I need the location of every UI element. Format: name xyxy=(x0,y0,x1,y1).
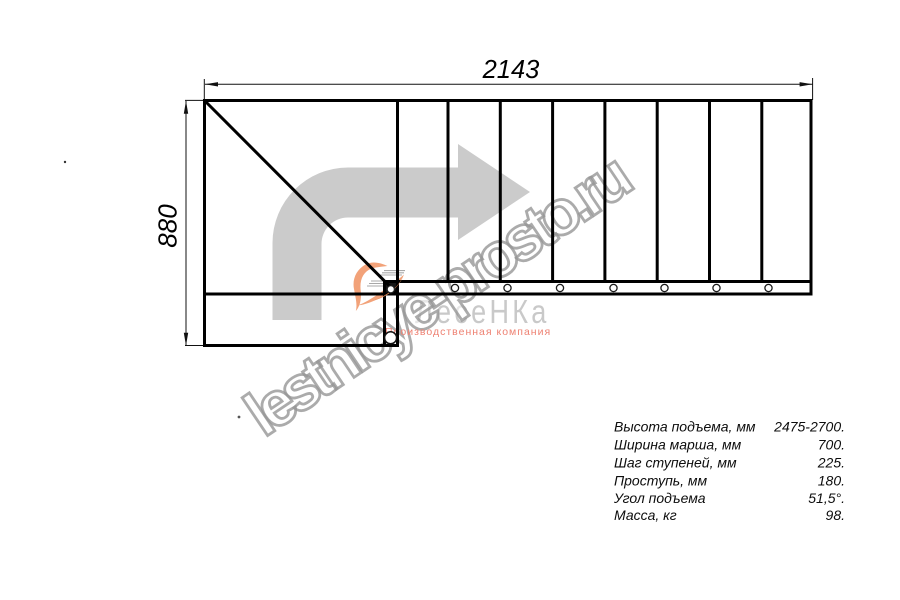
svg-text:Угол подъема: Угол подъема xyxy=(613,490,706,506)
svg-text:2143: 2143 xyxy=(482,56,540,84)
svg-text:880: 880 xyxy=(153,204,183,248)
svg-text:225.: 225. xyxy=(817,455,845,471)
svg-text:2475-2700.: 2475-2700. xyxy=(773,419,845,435)
svg-text:51,5°.: 51,5°. xyxy=(808,490,845,506)
svg-text:Масса, кг: Масса, кг xyxy=(614,507,677,523)
svg-text:700.: 700. xyxy=(818,437,845,453)
svg-text:Высота подъема, мм: Высота подъема, мм xyxy=(614,419,756,435)
svg-text:Проступь, мм: Проступь, мм xyxy=(614,473,708,489)
svg-text:Производственная компания: Производственная компания xyxy=(385,326,551,338)
svg-text:Шаг ступеней, мм: Шаг ступеней, мм xyxy=(614,455,737,471)
svg-text:98.: 98. xyxy=(826,507,845,523)
svg-text:Ширина марша, мм: Ширина марша, мм xyxy=(614,437,742,453)
svg-text:180.: 180. xyxy=(818,473,845,489)
